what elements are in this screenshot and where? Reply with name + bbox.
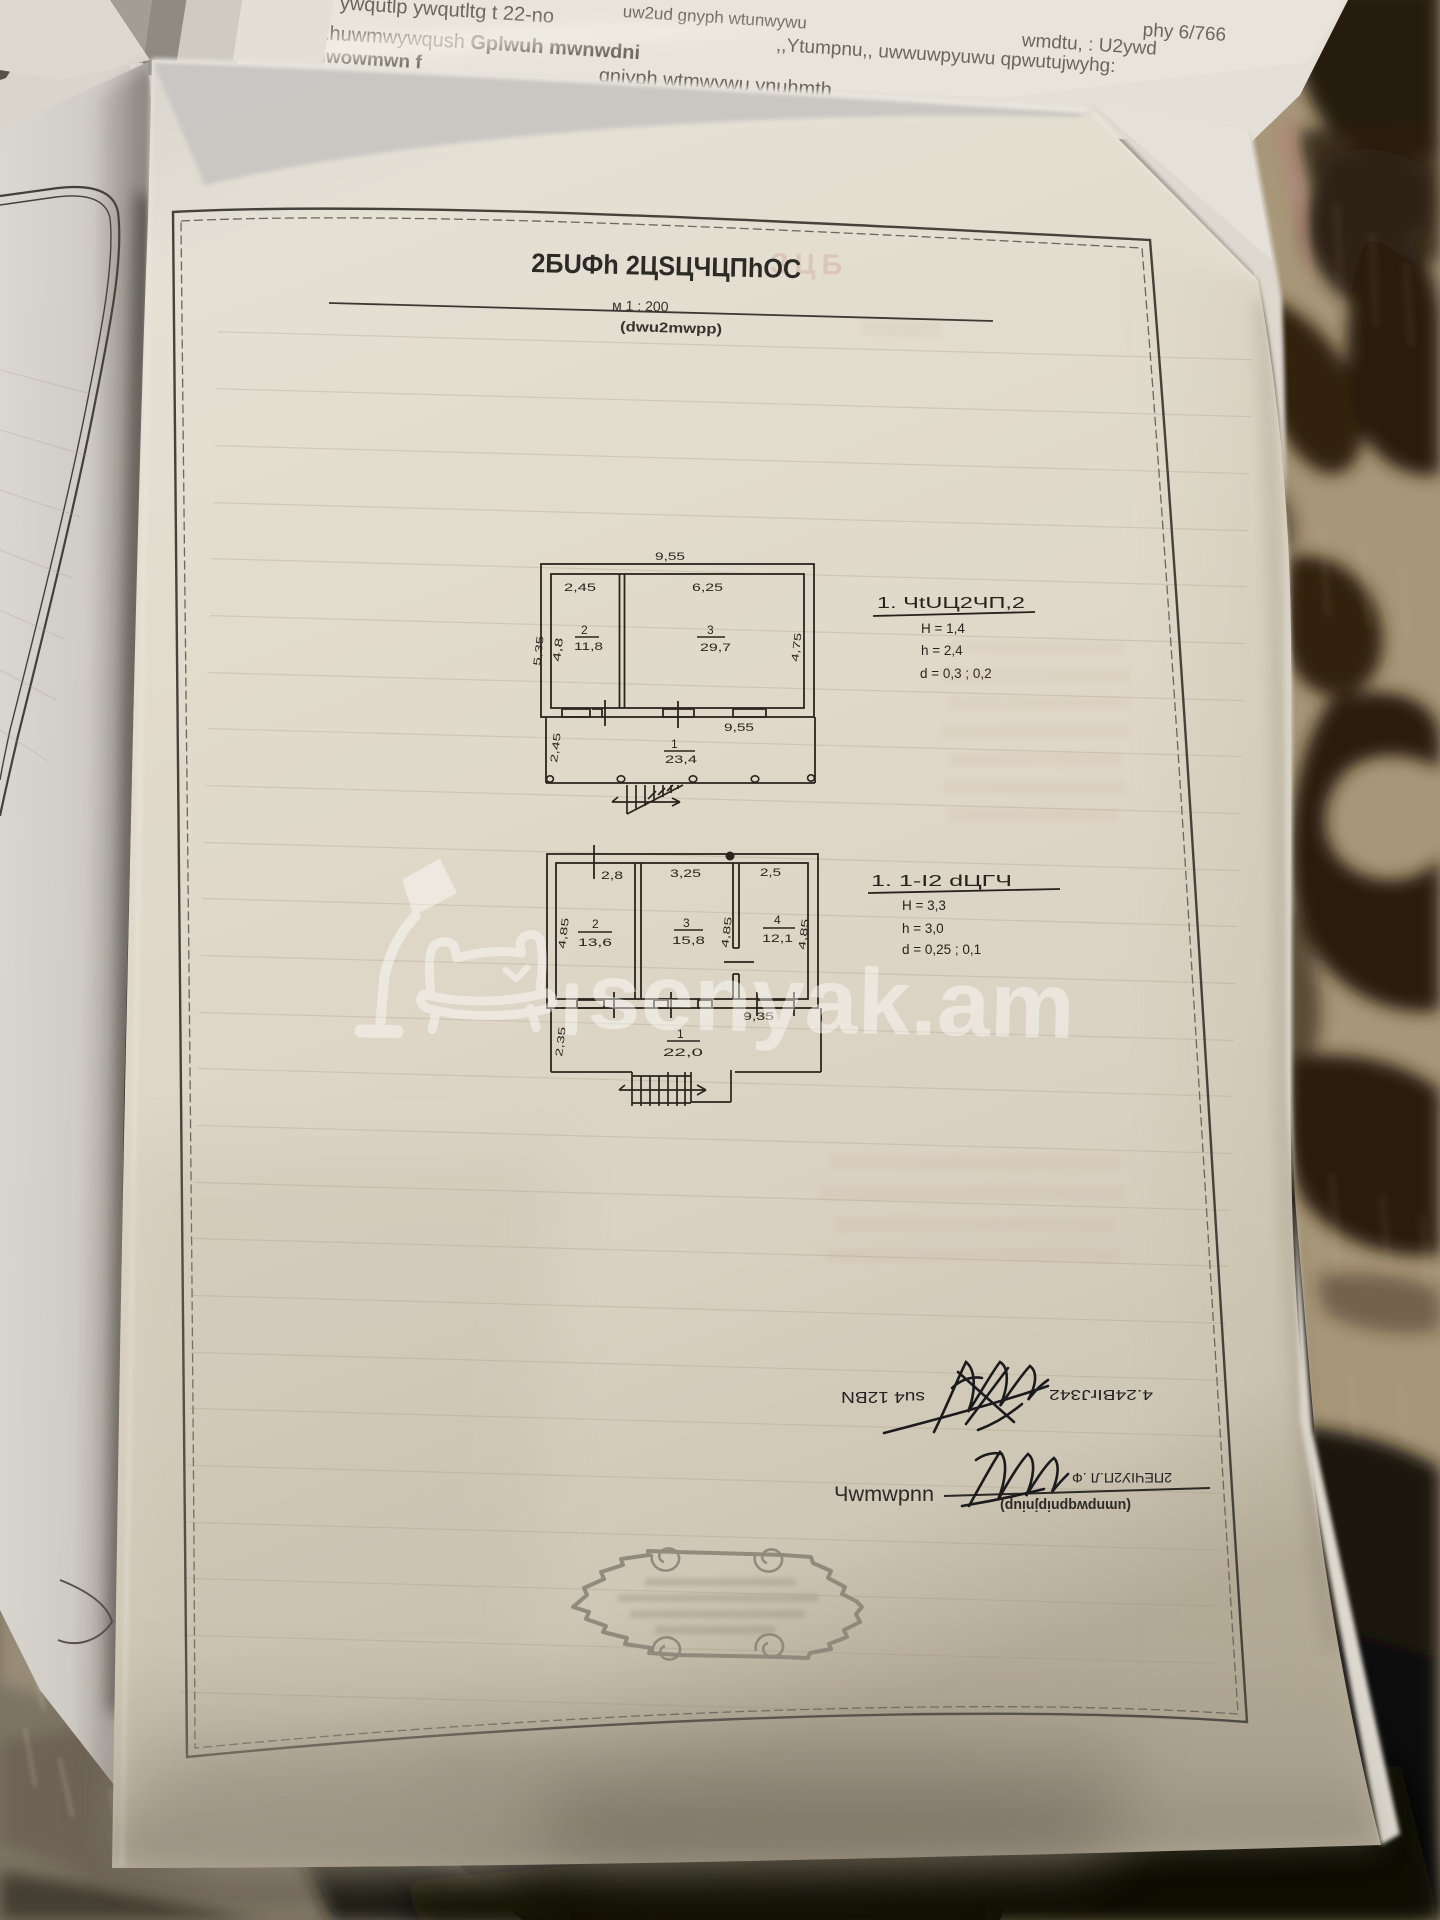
svg-text:3: 3 [683,916,690,930]
svg-text:1. ЧtUЦ2ЧП,2: 1. ЧtUЦ2ЧП,2 [877,595,1025,612]
svg-text:9,55: 9,55 [724,722,754,734]
svg-text:23,4: 23,4 [665,754,697,766]
svg-text:(dwu2mwpp): (dwu2mwpp) [620,318,722,337]
svg-text:2,5: 2,5 [760,867,781,879]
svg-text:Чwmwpnn: Чwmwpnn [834,1483,934,1506]
svg-text:1: 1 [671,737,678,751]
svg-text:senyak.am: senyak.am [587,944,1076,1058]
svg-text:(umnpwqpnipjniup): (umnpwqpnipjniup) [1000,1497,1131,1513]
svg-text:3: 3 [707,623,714,637]
svg-text:1. 1-I2 dЦГЧ: 1. 1-I2 dЦГЧ [871,873,1012,890]
svg-text:3,25: 3,25 [670,868,701,880]
svg-text:11,8: 11,8 [574,641,603,653]
svg-text:2ПЕЧIУ2П.Л .Ф: 2ПЕЧIУ2П.Л .Ф [1072,1470,1172,1486]
svg-text:12,1: 12,1 [762,933,793,945]
svg-text:2: 2 [581,623,588,637]
svg-text:H = 3,3: H = 3,3 [902,898,946,913]
svg-text:2,8: 2,8 [601,870,623,882]
svg-text:su4 12BN: su4 12BN [841,1388,925,1405]
svg-text:H = 1,4: H = 1,4 [921,621,965,636]
svg-text:6,25: 6,25 [692,582,723,594]
svg-text:4: 4 [774,913,781,927]
svg-text:9,55: 9,55 [655,551,685,563]
svg-text:4.24BIrJ342: 4.24BIrJ342 [1049,1386,1153,1403]
svg-text:2: 2 [592,917,599,931]
svg-text:2,45: 2,45 [564,582,596,594]
svg-text:29,7: 29,7 [700,642,731,654]
svg-text:h = 3,0: h = 3,0 [902,921,944,936]
svg-text:2БUФh 2ЦSЦЧЦПhOС: 2БUФh 2ЦSЦЧЦПhOС [531,248,802,284]
